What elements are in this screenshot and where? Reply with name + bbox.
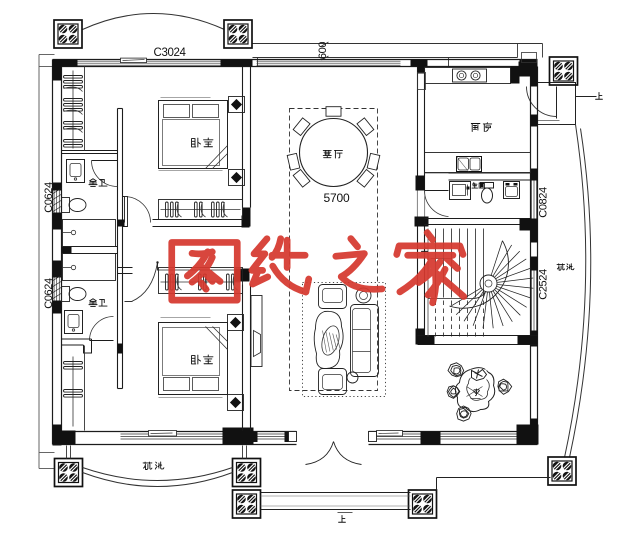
svg-text:600: 600: [317, 42, 329, 59]
svg-text:C0624: C0624: [43, 278, 55, 309]
svg-text:5700: 5700: [324, 191, 350, 205]
svg-text:C0624: C0624: [43, 182, 55, 213]
svg-text:C2524: C2524: [538, 269, 550, 300]
svg-text:C0824: C0824: [538, 187, 550, 218]
svg-text:C3024: C3024: [154, 47, 187, 59]
